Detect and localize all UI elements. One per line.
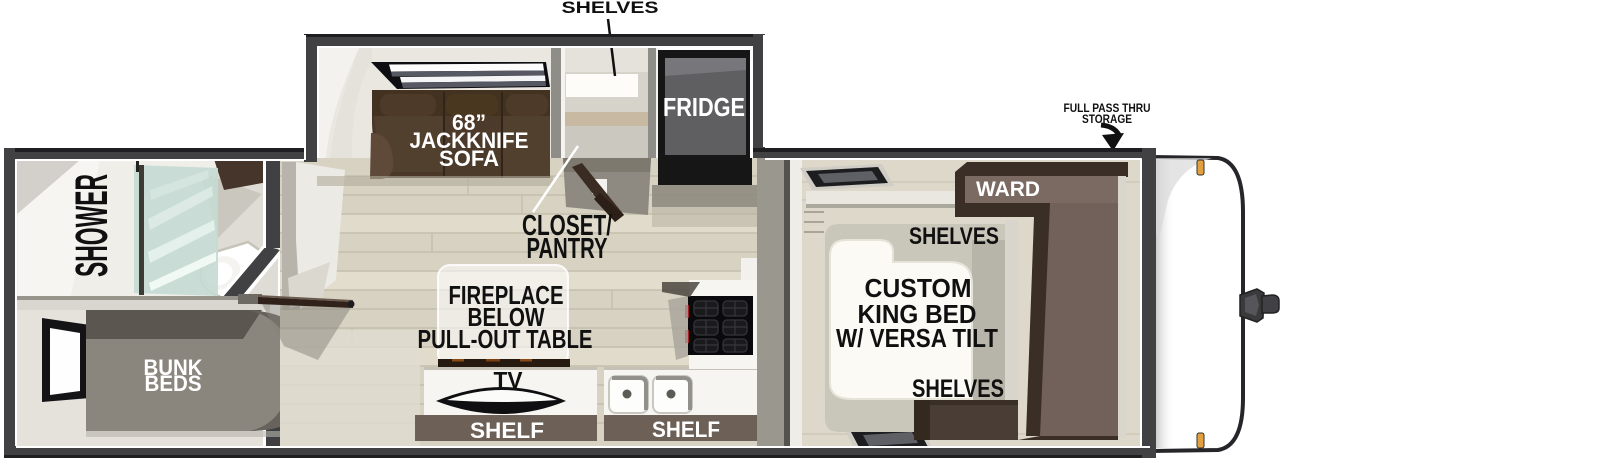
svg-text:PULL-OUT TABLE: PULL-OUT TABLE: [418, 324, 593, 354]
svg-text:FRIDGE: FRIDGE: [663, 92, 745, 122]
svg-text:PANTRY: PANTRY: [527, 233, 608, 265]
svg-text:SHELVES: SHELVES: [562, 0, 659, 17]
svg-text:TV: TV: [494, 367, 524, 393]
svg-text:SHELF: SHELF: [470, 418, 544, 443]
svg-text:SHELVES: SHELVES: [909, 223, 999, 250]
svg-text:SHELVES: SHELVES: [912, 375, 1004, 403]
svg-text:W/ VERSA TILT: W/ VERSA TILT: [836, 323, 998, 353]
svg-text:SHOWER: SHOWER: [66, 174, 117, 277]
svg-text:SOFA: SOFA: [439, 146, 499, 171]
svg-text:WARD: WARD: [976, 178, 1040, 201]
svg-text:SHELF: SHELF: [652, 417, 720, 442]
svg-text:BEDS: BEDS: [145, 371, 202, 396]
